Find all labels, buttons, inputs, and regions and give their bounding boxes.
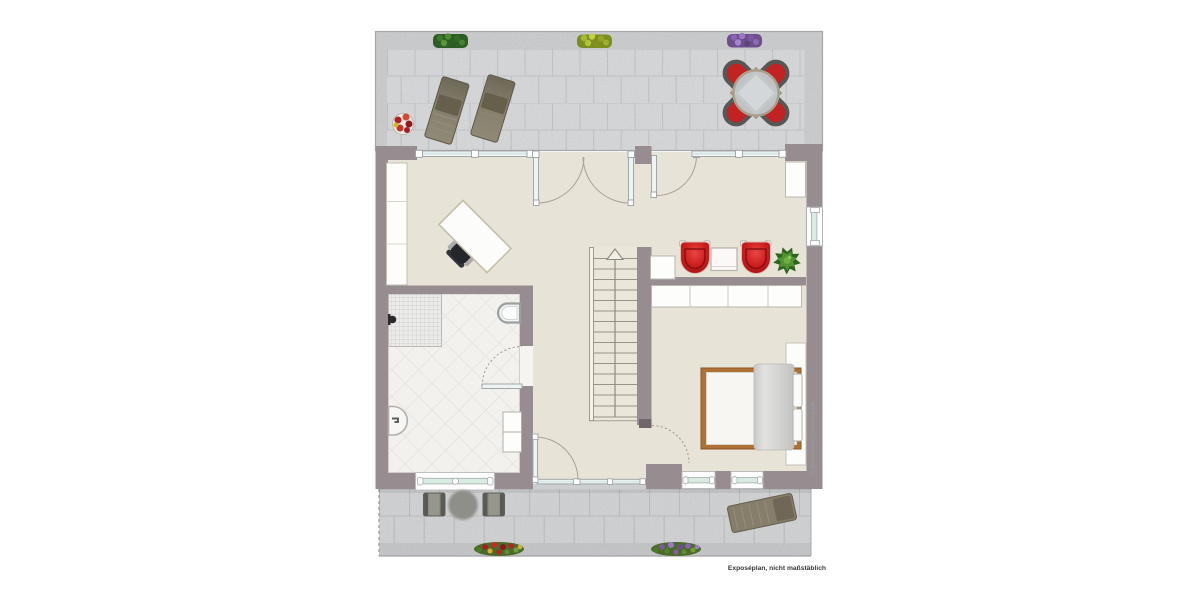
svg-text:Exposéplan, nicht maßstäblich: Exposéplan, nicht maßstäblich: [728, 565, 826, 572]
svg-text:© IllustrationCammoGrafik: © IllustrationCammoGrafik: [809, 400, 817, 475]
